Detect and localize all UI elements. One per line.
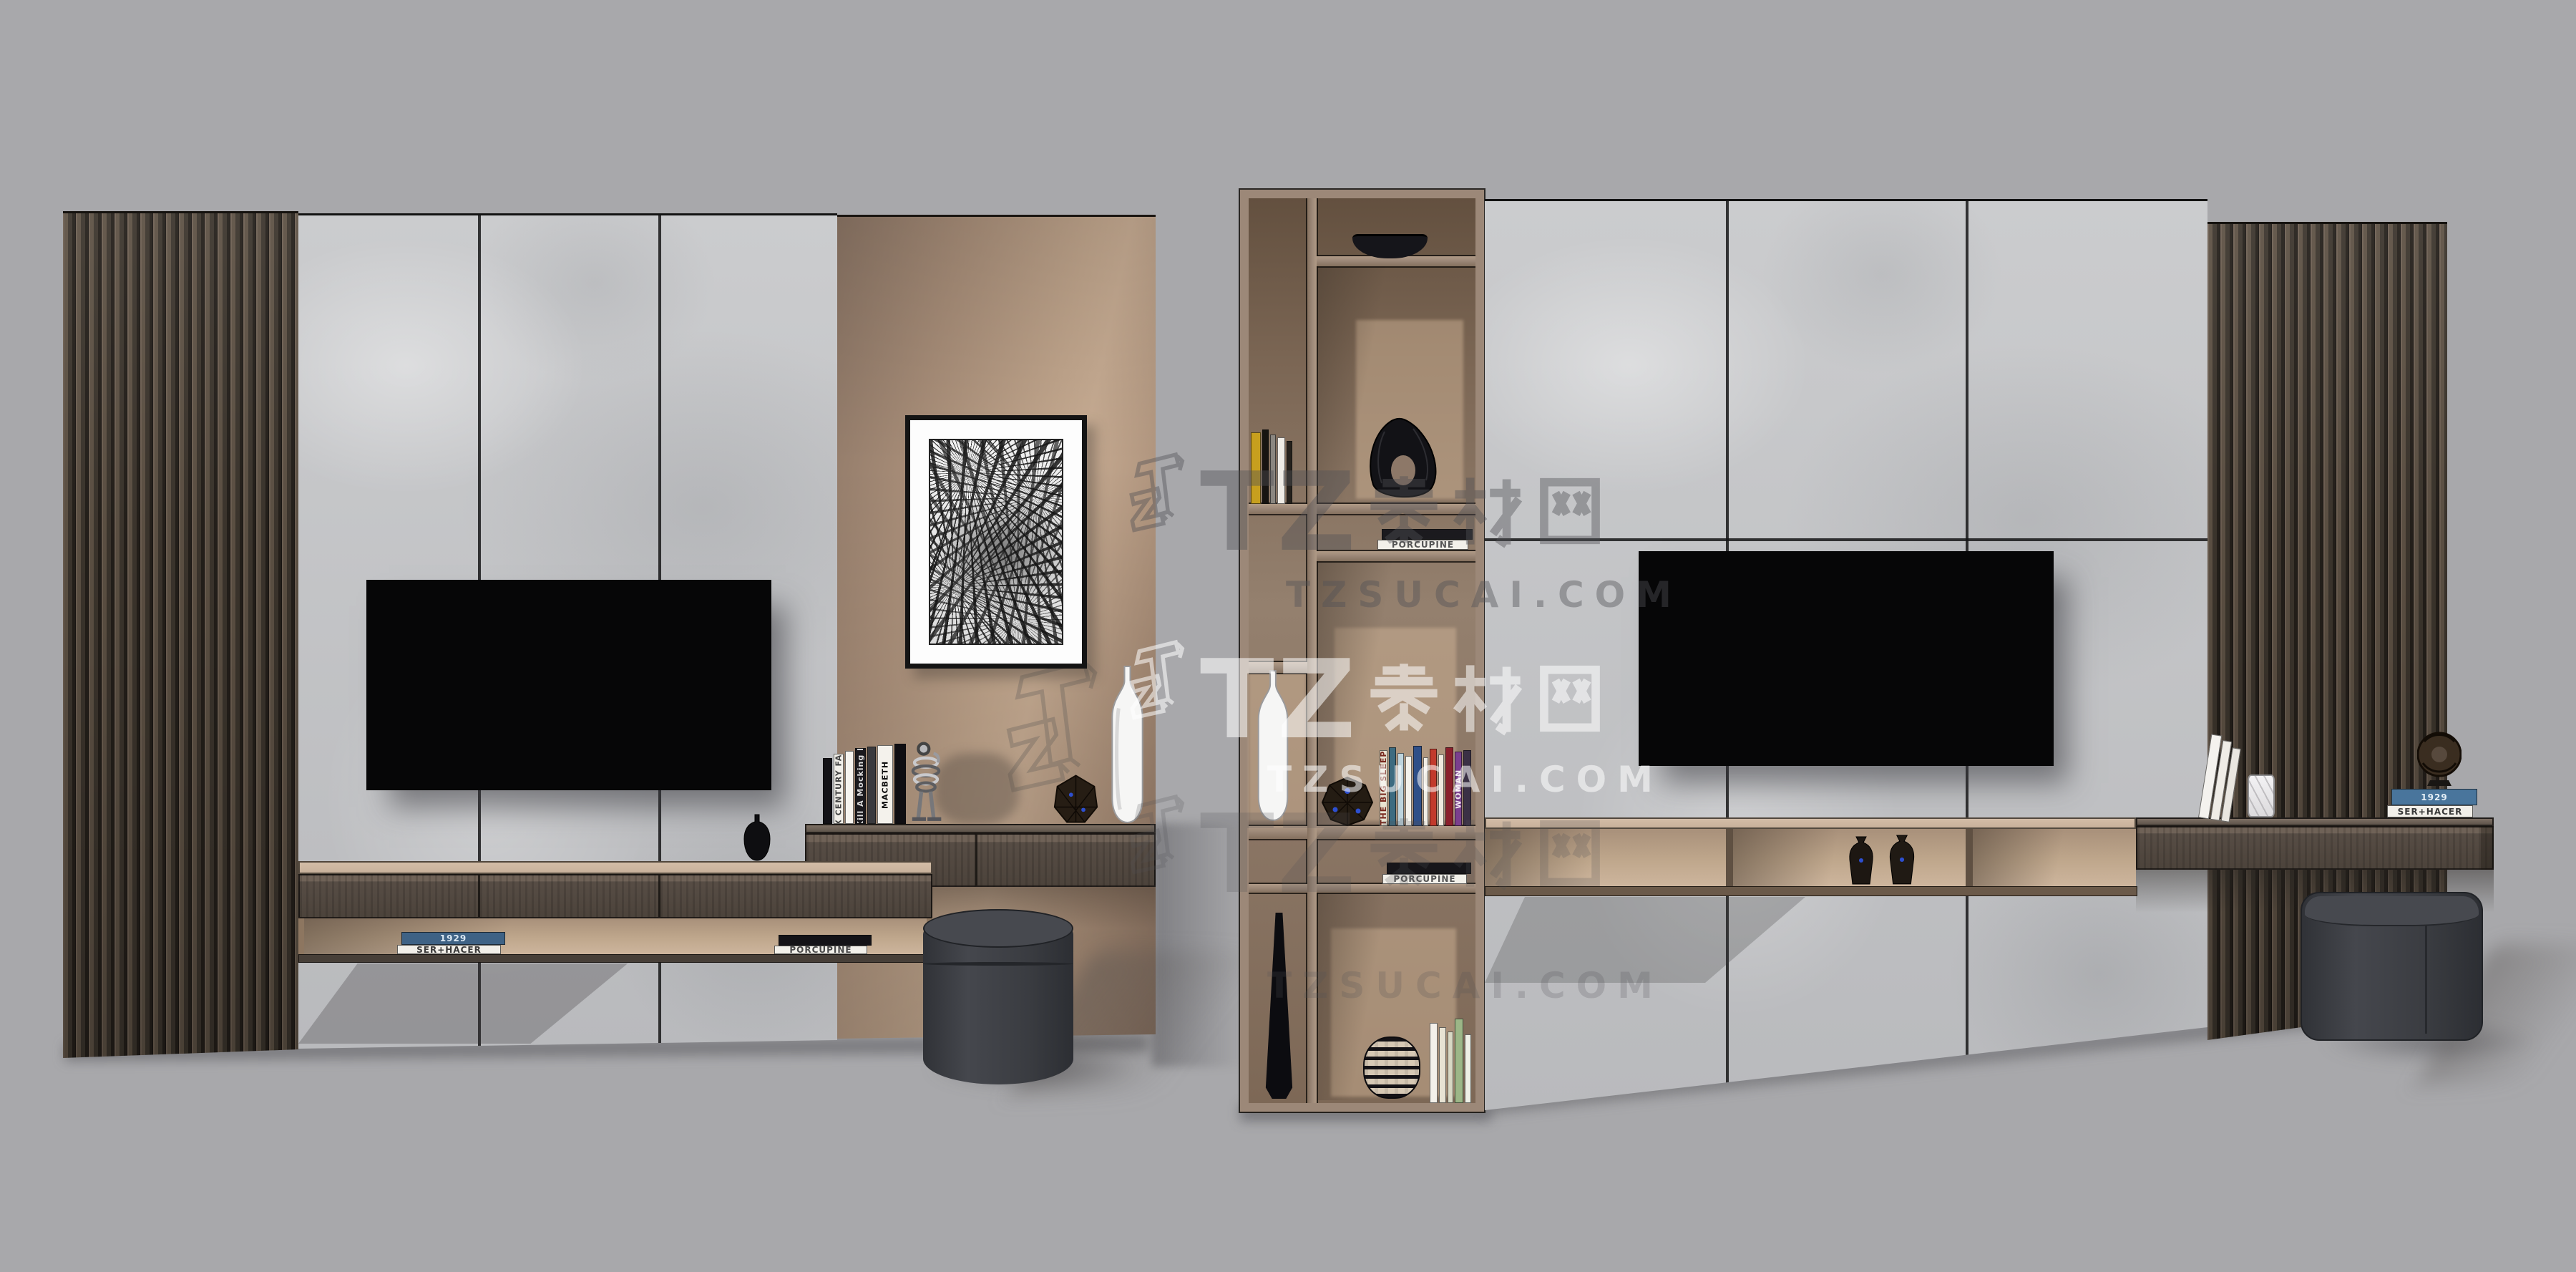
shadow-under-niche	[1485, 897, 1885, 983]
cylinder-ottoman	[923, 909, 1073, 1084]
book-spine	[1430, 1023, 1438, 1103]
faceted-vase-dark	[1052, 774, 1100, 824]
raised-console-books: A SIX CENTURY FAMILYTo Kill A Mocking Bi…	[823, 744, 907, 824]
shelf-book-stack: PORCUPINE	[774, 934, 867, 954]
tower-shelf	[1317, 504, 1475, 514]
right-tv-screen	[1639, 551, 2054, 766]
drawer-divider	[478, 875, 480, 917]
artwork-palm-photo	[929, 439, 1063, 645]
tower-books-left	[1251, 427, 1295, 504]
tower-shelf	[1317, 826, 1475, 839]
book-spine	[1438, 754, 1444, 826]
panel-seam	[1485, 538, 2207, 541]
left-slat-panel	[63, 211, 298, 1058]
stacked-book	[779, 935, 872, 946]
book-spine	[1405, 756, 1412, 826]
console-top-surface	[298, 861, 932, 874]
niche-interior	[1485, 829, 2136, 886]
tower-book-stack: PORCUPINE	[1382, 853, 1467, 884]
book-spine	[1439, 1027, 1446, 1103]
book-spine	[1463, 750, 1471, 826]
console-drawers	[298, 874, 932, 918]
cube-ottoman	[2301, 892, 2483, 1041]
left-wall-unit: A SIX CENTURY FAMILYTo Kill A Mocking Bi…	[0, 0, 1288, 1272]
stacked-book: PORCUPINE	[1377, 540, 1468, 550]
console-top	[2136, 817, 2494, 826]
book-spine: A SIX CENTURY FAMILY	[834, 754, 844, 824]
book-spine	[1389, 747, 1396, 826]
stacked-book	[1382, 529, 1473, 540]
tower-divider	[1307, 198, 1317, 1103]
console-book-stack: 1929SER+HACER	[2387, 785, 2473, 817]
faceted-ball	[1321, 777, 1374, 826]
book-spine	[845, 751, 854, 824]
white-bottle-vase	[1106, 665, 1149, 824]
framed-artwork	[905, 415, 1087, 669]
spiral-figure-sculpture	[903, 739, 949, 824]
cone-vase	[1262, 913, 1297, 1099]
stacked-book: SER+HACER	[397, 945, 501, 954]
ottoman-top-face	[923, 909, 1073, 948]
ottoman-seam	[923, 962, 1073, 966]
console-top	[805, 824, 1156, 833]
stacked-book: 1929	[2391, 789, 2477, 805]
niche-shadow	[1485, 829, 1680, 886]
stacked-book: PORCUPINE	[774, 946, 867, 954]
left-tv-screen	[366, 580, 771, 790]
tower-books-green	[1430, 1019, 1473, 1103]
render-scene: A SIX CENTURY FAMILYTo Kill A Mocking Bi…	[0, 0, 2576, 1272]
niche-bottom-lip	[1485, 886, 2137, 896]
tower-shelf	[1317, 551, 1475, 561]
tower-shelf	[1249, 826, 1307, 839]
book-spine: THE BIG SLEEP	[1380, 750, 1387, 826]
drawer-divider	[658, 875, 660, 917]
media-niche	[1485, 817, 2136, 895]
book-spine	[1262, 429, 1269, 504]
book-spine	[823, 758, 832, 824]
book-spine	[1430, 749, 1437, 826]
organic-sculpture	[1363, 417, 1442, 504]
ottoman-seam	[2425, 925, 2427, 1034]
niche-top-lip	[1485, 817, 2136, 829]
tower-books-colorful: THE BIG SLEEPWOMAN	[1380, 746, 1473, 826]
shelf-book-stack: 1929SER+HACER	[397, 931, 501, 954]
book-spine	[1287, 441, 1292, 504]
tower-shelf	[1317, 884, 1475, 893]
console-end-shade	[2481, 826, 2494, 870]
stacked-book: PORCUPINE	[1382, 874, 1467, 884]
tower-book-stack: PORCUPINE	[1377, 526, 1468, 550]
book-spine	[867, 747, 877, 824]
shadow-under-console	[298, 963, 721, 1044]
right-wall-unit: PORCUPINE THE BIG SLEEPWOMAN PORCUPINE	[1145, 0, 2576, 1272]
book-spine	[1465, 1034, 1471, 1103]
book-spine	[1445, 747, 1453, 826]
tower-shelf	[1249, 884, 1307, 893]
console-body	[2136, 826, 2494, 870]
niche-divider	[1726, 829, 1733, 886]
display-tower: PORCUPINE THE BIG SLEEPWOMAN PORCUPINE	[1240, 190, 1484, 1112]
console-bottom-panel	[298, 954, 934, 963]
left-main-console: 1929SER+HACER PORCUPINE	[298, 861, 932, 961]
book-spine: To Kill A Mocking Bird	[855, 748, 866, 824]
stacked-book	[1387, 863, 1471, 874]
drawer-divider	[975, 835, 977, 885]
basket-bowl	[1363, 1036, 1420, 1099]
white-bottle-vase	[1252, 665, 1294, 826]
book-spine	[1413, 746, 1422, 826]
book-spine	[1397, 753, 1404, 826]
small-urn-vase	[1886, 835, 1918, 886]
niche-shadow	[1973, 829, 2129, 886]
donut-swirl-sculpture	[2417, 727, 2462, 787]
book-spine	[1277, 437, 1285, 504]
book-spine	[1270, 434, 1276, 504]
niche-divider	[1966, 829, 1973, 886]
book-spine	[1455, 1019, 1463, 1103]
tower-shelf	[1249, 504, 1307, 514]
small-urn-vase	[1846, 836, 1876, 886]
book-spine	[1448, 1031, 1454, 1103]
marble-cup	[2248, 775, 2275, 817]
stacked-book: 1929	[401, 932, 505, 945]
book-spine: MACBETH	[877, 745, 893, 824]
book-spine	[1251, 432, 1261, 504]
ottoman-top-face	[2305, 896, 2479, 926]
book-spine: WOMAN	[1455, 752, 1462, 826]
stacked-book: SER+HACER	[2387, 805, 2473, 817]
black-bowl	[1352, 234, 1428, 258]
right-console	[2136, 817, 2494, 870]
black-bottle-vase	[741, 814, 774, 861]
book-spine	[1423, 757, 1429, 826]
